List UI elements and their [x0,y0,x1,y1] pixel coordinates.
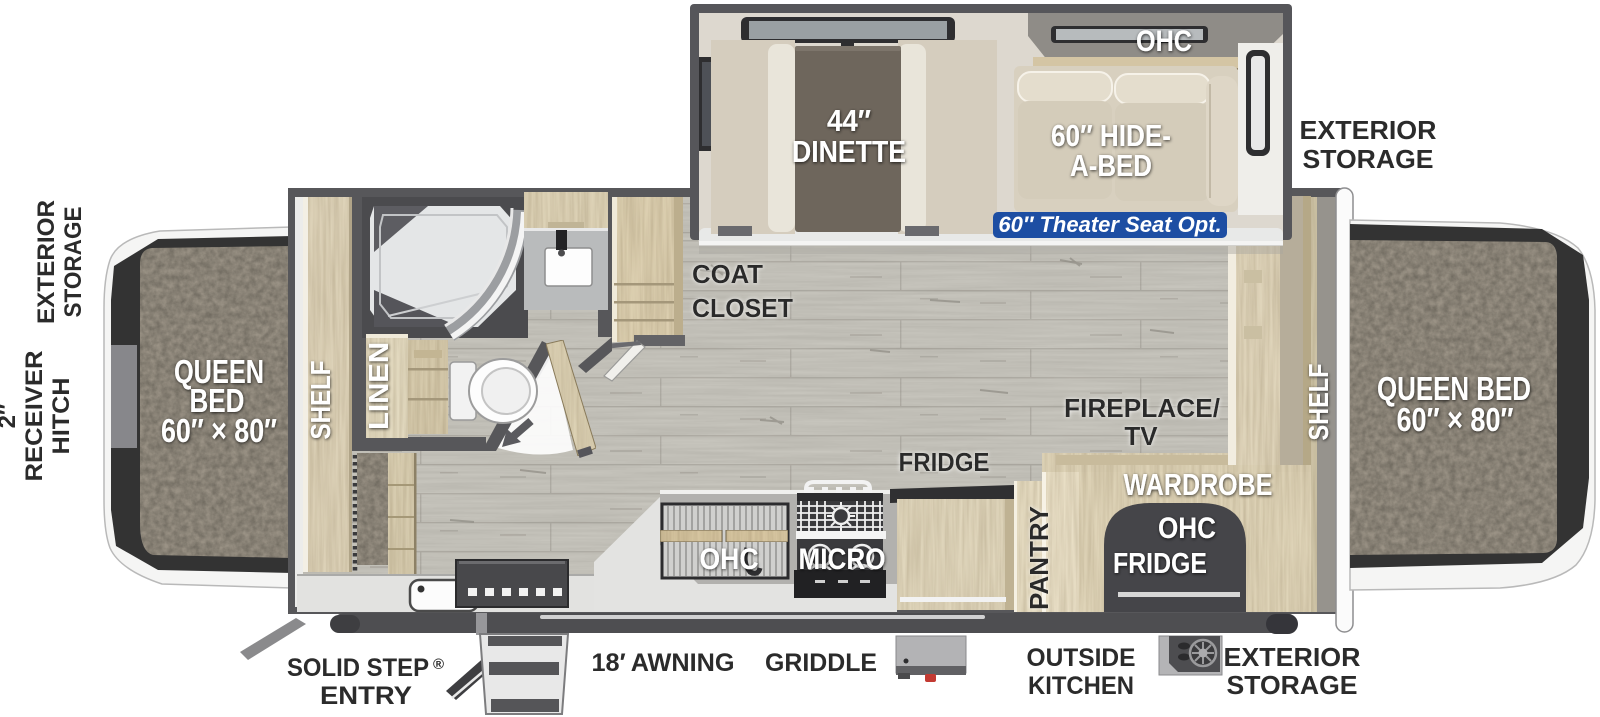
svg-text:STORAGE: STORAGE [60,207,87,318]
svg-text:OHC: OHC [1136,25,1192,58]
svg-text:KITCHEN: KITCHEN [1028,672,1134,700]
svg-text:EXTERIOR: EXTERIOR [1224,642,1361,672]
svg-text:WARDROBE: WARDROBE [1124,467,1273,502]
svg-text:OUTSIDE: OUTSIDE [1027,644,1136,672]
svg-text:TV: TV [1124,421,1158,451]
svg-text:OHC: OHC [700,543,759,576]
svg-text:44″: 44″ [827,103,871,138]
svg-text:CLOSET: CLOSET [692,293,793,323]
svg-text:SHELF: SHELF [305,361,336,440]
svg-text:GRIDDLE: GRIDDLE [765,649,877,677]
svg-text:2″: 2″ [0,403,21,428]
svg-text:LINEN: LINEN [363,342,394,430]
svg-text:RECEIVER: RECEIVER [21,351,48,482]
svg-text:PANTRY: PANTRY [1024,506,1054,610]
svg-text:®: ® [433,656,444,673]
svg-text:FRIDGE: FRIDGE [899,447,990,477]
svg-text:SOLID STEP: SOLID STEP [287,654,429,682]
svg-text:STORAGE: STORAGE [1227,670,1358,700]
svg-text:EXTERIOR: EXTERIOR [1300,115,1437,145]
svg-text:60″ × 80″: 60″ × 80″ [161,412,277,449]
svg-text:18′ AWNING: 18′ AWNING [592,649,735,677]
svg-text:SHELF: SHELF [1303,364,1334,441]
svg-text:OHC: OHC [1158,512,1216,545]
svg-text:EXTERIOR: EXTERIOR [33,200,60,324]
svg-text:DINETTE: DINETTE [792,134,906,169]
svg-text:60″ × 80″: 60″ × 80″ [1397,401,1514,438]
svg-text:STORAGE: STORAGE [1303,144,1434,174]
svg-text:FIREPLACE/: FIREPLACE/ [1064,393,1220,423]
svg-text:A-BED: A-BED [1070,148,1152,183]
svg-text:MICRO: MICRO [799,543,886,576]
svg-text:COAT: COAT [692,259,763,289]
svg-text:HITCH: HITCH [48,378,75,455]
svg-text:60″ Theater Seat Opt.: 60″ Theater Seat Opt. [998,212,1221,237]
svg-text:ENTRY: ENTRY [320,682,412,710]
svg-text:FRIDGE: FRIDGE [1113,548,1207,580]
